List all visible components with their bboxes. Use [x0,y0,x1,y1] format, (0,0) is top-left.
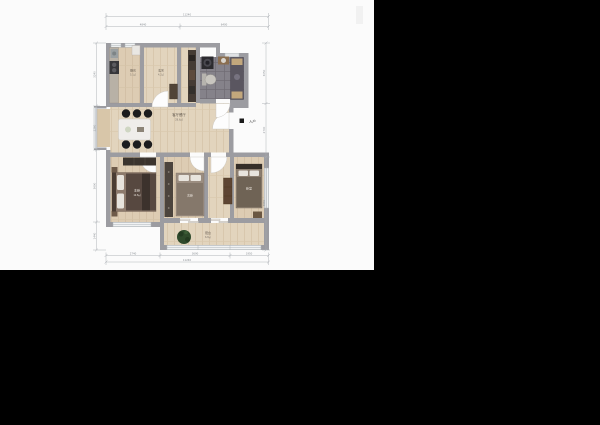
nightstand [112,211,118,217]
master-bedroom-label: 主卧 [134,188,140,193]
dim-right-c: 4660 [262,199,266,206]
table-decor-tray [137,127,144,132]
right-bedroom-label: 卧室 [246,186,252,191]
wall-kitchen-entry [140,48,144,104]
blanket-right [237,177,261,207]
balcony-items [177,230,191,244]
drain [234,74,240,80]
dim-top-b: 6400 [221,22,228,26]
shoe-cabinet [170,84,178,99]
dim-top-total: 11240 [183,12,192,16]
wall-bed2-study [204,157,208,218]
wall-divider-c [204,153,211,158]
toilet-bowl [205,75,216,85]
sink-basin [112,52,116,56]
living-label: 客厅餐厅 [172,112,186,117]
headboard-master [112,173,116,212]
dim-bottom-b: 3690 [192,251,199,255]
wall-bath-bottom-a [200,99,216,104]
entry-marker-label: 入户 [249,119,256,124]
wall-balcony-div-c [228,218,269,223]
tv-cabinet [188,50,196,102]
basin [221,58,226,63]
dining-table [119,119,151,140]
nightstand [112,167,118,173]
washer-drum-inner [206,61,210,65]
wall-hall-bottom-b [168,103,196,107]
bed-throw [142,174,150,211]
dim-bottom-a: 2740 [130,251,137,255]
pillow [239,171,249,177]
balcony-window [167,245,261,249]
pillow [250,171,260,177]
kitchen-label: 厨房 [130,68,136,73]
study-cabinet [224,178,233,204]
wall-left-lower [106,150,111,222]
dining-chair [133,140,141,148]
table-decor-plate [125,127,131,133]
entry-label: 玄关 [158,68,164,73]
dim-left-b: 2260 [92,124,96,131]
wall-balcony-div-a [160,218,180,223]
dining-set [119,109,153,148]
dim-right-a: 3050 [262,69,266,76]
floorplan-canvas: 入户 厨房 5.1㎡ 玄关 4.2㎡ 客厅餐厅 28.6㎡ 主卧 12.8㎡ 次… [0,0,374,270]
wall-divider-d [226,153,264,158]
wall-alcove [233,104,249,109]
dim-top-a: 4840 [140,22,147,26]
entry-marker-icon [240,119,245,124]
wall-divider-b [156,153,190,158]
dining-chair [133,109,141,117]
pillow [191,175,202,181]
dim-left-a: 3240 [92,71,96,78]
dim-bottom-total: 11240 [183,258,192,262]
blanket-master [126,174,156,211]
bathroom-window [225,53,239,56]
wall-balcony-left [160,223,164,245]
faint-smudge [356,6,363,24]
wall-hall-bottom-a [106,103,152,107]
wall-bath-right [244,53,249,108]
floorplan-drawing: 入户 厨房 5.1㎡ 玄关 4.2㎡ 客厅餐厅 28.6㎡ 主卧 12.8㎡ 次… [0,0,374,270]
blanket-second [177,183,203,215]
bench [253,212,262,219]
wardrobe-master [123,158,156,166]
wall-balcony-div-b [198,218,211,223]
pillow [117,194,124,209]
entry-area: 4.2㎡ [158,73,165,77]
dim-left-d: 1440 [92,232,96,239]
balcony-label: 阳台 [205,230,211,235]
wall-bath-left [196,48,200,104]
headboard-right [236,164,262,169]
wall-top [106,43,220,48]
bay-window-sill [97,109,110,147]
wall-divider-a [110,153,140,158]
kitchen-area: 5.1㎡ [130,73,137,77]
living-area: 28.6㎡ [175,118,183,122]
dining-chair [122,140,130,148]
study-furniture [224,178,233,204]
fridge [132,46,140,56]
bedroom1-window [113,222,151,226]
burner-2 [112,68,116,72]
kitchen-window-1 [111,43,121,47]
pillow [179,175,190,181]
wall-bed1-bed2 [160,157,164,223]
dim-right-b: 2700 [262,126,266,133]
burner-1 [112,63,116,67]
pillow [117,175,124,190]
screenshot-stage: 入户 厨房 5.1㎡ 玄关 4.2㎡ 客厅餐厅 28.6㎡ 主卧 12.8㎡ 次… [0,0,600,425]
second-bedroom-label: 次卧 [187,193,193,198]
bath-mat-top [232,59,243,66]
master-bedroom-area: 12.8㎡ [133,193,141,197]
plant [177,230,191,244]
bath-mat-bottom [232,92,243,99]
dim-left-c: 3690 [92,182,96,189]
dining-chair [122,109,130,117]
dining-chair [144,109,152,117]
dining-chair [144,140,152,148]
dim-bottom-c: 1950 [246,251,253,255]
balcony-area: 6.8㎡ [205,235,212,239]
